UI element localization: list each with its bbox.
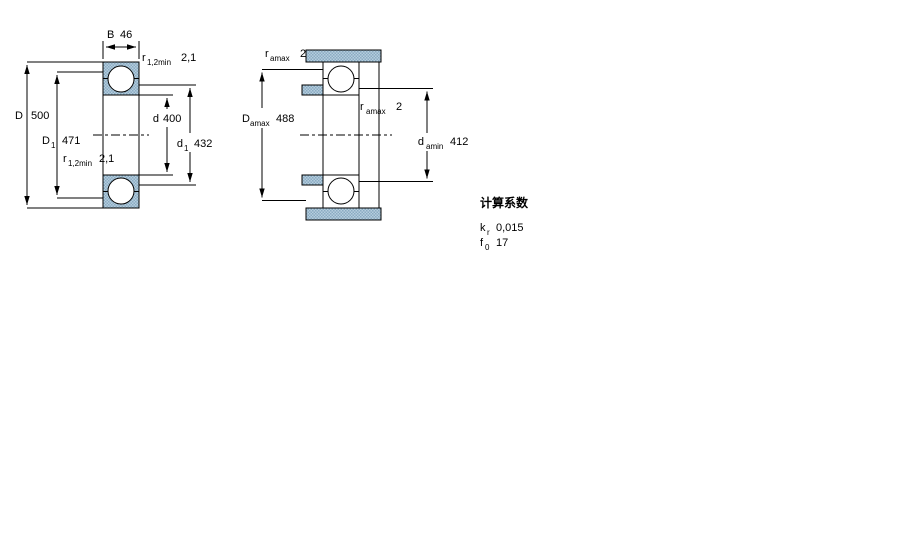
- ball-top: [108, 66, 134, 92]
- dim-d1-sub: 1: [184, 144, 189, 153]
- dim-damin-label: d: [418, 136, 424, 148]
- technical-drawing: B 46 r 1,2min 2,1 D 500 D 1 471: [0, 0, 900, 560]
- dim-D1-label: D: [42, 135, 50, 147]
- dim-r-top-sub: 1,2min: [147, 58, 171, 67]
- factor-f0-value: 17: [496, 237, 508, 249]
- factor-kr-label: k: [480, 222, 486, 234]
- dim-ra-mid: r amax 2: [360, 101, 402, 116]
- factor-row-kr: k r 0,015: [480, 222, 524, 237]
- dim-d1-value: 432: [194, 138, 212, 150]
- dim-Damax-value: 488: [276, 113, 294, 125]
- dim-r-mid-value: 2,1: [99, 153, 114, 165]
- right-view: r amax 2 D amax 488 r amax 2 d amin: [242, 48, 468, 220]
- factor-f0-label: f: [480, 237, 484, 249]
- factor-kr-value: 0,015: [496, 222, 524, 234]
- dim-ra-top-label: r: [265, 48, 269, 60]
- shaft-shoulder-top: [302, 85, 323, 95]
- bearing-cross-section: [93, 62, 149, 208]
- dim-B: B 46: [103, 29, 139, 59]
- dim-Damax-sub: amax: [250, 119, 270, 128]
- dim-r-top: r 1,2min 2,1: [142, 52, 196, 67]
- dim-ra-mid-label: r: [360, 101, 364, 113]
- dim-Damax-label: D: [242, 113, 250, 125]
- dim-ra-top-sub: amax: [270, 54, 290, 63]
- dim-D-label: D: [15, 110, 23, 122]
- factor-row-f0: f 0 17: [480, 237, 508, 252]
- calculation-factors: 计算系数 k r 0,015 f 0 17: [480, 195, 529, 252]
- dim-d1-label: d: [177, 138, 183, 150]
- dim-b-label: B: [107, 29, 114, 41]
- dim-d-label: d: [153, 113, 159, 125]
- dim-r-top-value: 2,1: [181, 52, 196, 64]
- dim-D1-sub: 1: [51, 141, 56, 150]
- factor-f0-sub: 0: [485, 243, 490, 252]
- dim-ra-mid-sub: amax: [366, 107, 386, 116]
- dim-damin-sub: amin: [426, 142, 443, 151]
- dim-r-top-label: r: [142, 52, 146, 64]
- dim-ra-top: r amax 2: [265, 48, 306, 63]
- left-view: B 46 r 1,2min 2,1 D 500 D 1 471: [15, 29, 212, 208]
- ball-bottom: [328, 178, 354, 204]
- factor-kr-sub: r: [487, 228, 490, 237]
- page: B 46 r 1,2min 2,1 D 500 D 1 471: [0, 0, 900, 560]
- dim-d-value: 400: [163, 113, 181, 125]
- dim-D-value: 500: [31, 110, 49, 122]
- housing-shoulder-bottom: [306, 208, 381, 220]
- dim-D1-value: 471: [62, 135, 80, 147]
- shaft-shoulder-bottom: [302, 175, 323, 185]
- calculation-factors-title: 计算系数: [480, 195, 529, 210]
- dim-ra-mid-value: 2: [396, 101, 402, 113]
- dim-r-mid-label: r: [63, 153, 67, 165]
- dim-d: d 400: [139, 95, 181, 175]
- dim-d1: d 1 432: [139, 85, 212, 185]
- dim-damin-value: 412: [450, 136, 468, 148]
- ball-bottom: [108, 178, 134, 204]
- housing-shoulder-top: [306, 50, 381, 62]
- ball-top: [328, 66, 354, 92]
- dim-ra-top-value: 2: [300, 48, 306, 60]
- dim-D: D 500: [15, 62, 103, 208]
- dim-b-value: 46: [120, 29, 132, 41]
- dim-r-mid-sub: 1,2min: [68, 159, 92, 168]
